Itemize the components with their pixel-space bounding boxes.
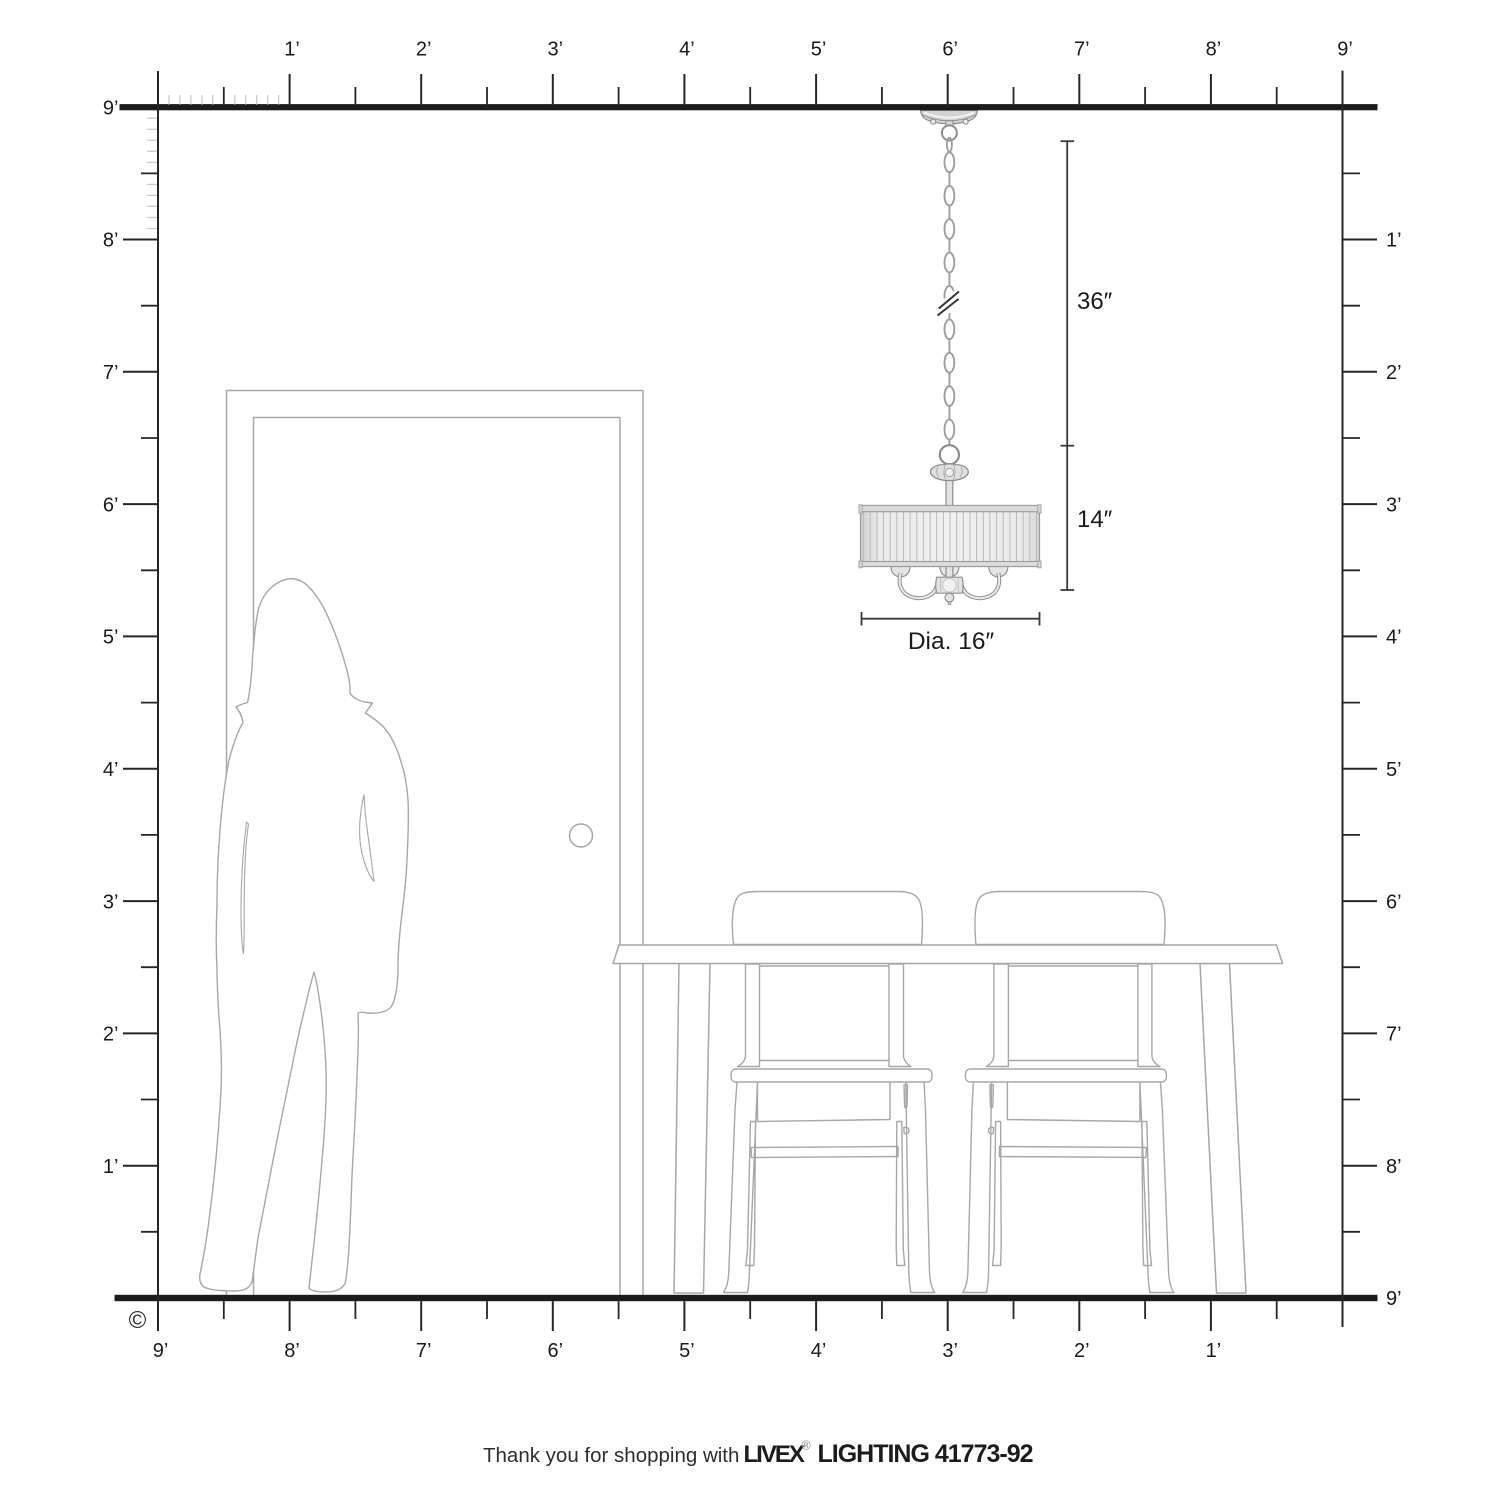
svg-text:Thank you for shopping with: Thank you for shopping with [483,1444,739,1467]
svg-text:8’: 8’ [1206,39,1222,61]
svg-text:7’: 7’ [416,1340,432,1362]
svg-text:6’: 6’ [1386,891,1402,913]
svg-text:9’: 9’ [1337,39,1353,61]
svg-text:1’: 1’ [1206,1340,1222,1362]
svg-text:©: © [129,1307,147,1334]
svg-text:1’: 1’ [103,1156,119,1178]
svg-text:3’: 3’ [1386,494,1402,516]
svg-text:4’: 4’ [103,759,119,781]
svg-text:5’: 5’ [1386,759,1402,781]
svg-text:4’: 4’ [679,39,695,61]
svg-text:14″: 14″ [1077,506,1113,533]
svg-text:9’: 9’ [103,97,119,119]
svg-text:2’: 2’ [1074,1340,1090,1362]
svg-text:1’: 1’ [284,39,300,61]
svg-text:9’: 9’ [153,1340,169,1362]
svg-text:5’: 5’ [811,39,827,61]
svg-text:8’: 8’ [103,230,119,252]
svg-text:LIVEX: LIVEX [744,1441,805,1468]
svg-text:2’: 2’ [416,39,432,61]
svg-text:6’: 6’ [548,1340,564,1362]
svg-text:8’: 8’ [1386,1156,1402,1178]
svg-text:5’: 5’ [679,1340,695,1362]
svg-text:7’: 7’ [1386,1024,1402,1046]
svg-text:4’: 4’ [811,1340,827,1362]
svg-text:2’: 2’ [1386,362,1402,384]
svg-text:7’: 7’ [1074,39,1090,61]
svg-text:5’: 5’ [103,627,119,649]
svg-text:3’: 3’ [548,39,564,61]
svg-text:1’: 1’ [1386,230,1402,252]
svg-text:Dia. 16″: Dia. 16″ [908,628,995,655]
svg-text:2’: 2’ [103,1024,119,1046]
svg-text:6’: 6’ [103,494,119,516]
svg-text:7’: 7’ [103,362,119,384]
svg-text:9’: 9’ [1386,1288,1402,1310]
svg-text:3’: 3’ [103,891,119,913]
svg-text:4’: 4’ [1386,627,1402,649]
svg-text:6’: 6’ [942,39,958,61]
svg-text:3’: 3’ [942,1340,958,1362]
svg-text:36″: 36″ [1077,288,1113,315]
svg-text:8’: 8’ [284,1340,300,1362]
svg-text:®: ® [802,1439,812,1453]
svg-text:LIGHTING 41773-92: LIGHTING 41773-92 [818,1440,1033,1468]
